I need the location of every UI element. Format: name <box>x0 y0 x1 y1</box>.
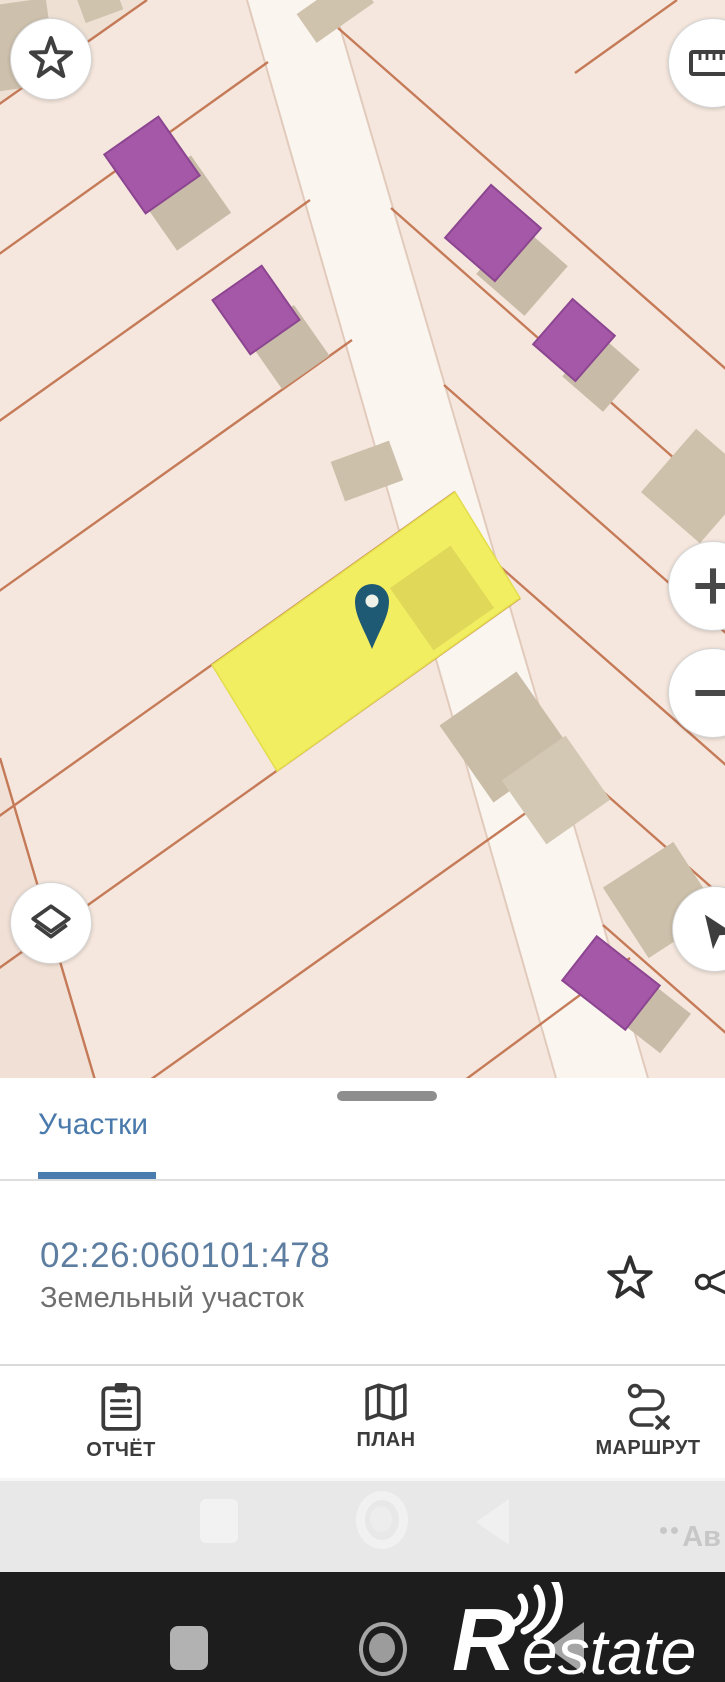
bottom-sheet: Участки 02:26:060101:478 Земельный участ… <box>0 1078 725 1478</box>
svg-text:R: R <box>452 1590 516 1682</box>
brand-watermark: R estate <box>452 1582 725 1682</box>
route-icon <box>625 1382 671 1430</box>
watermark-dot <box>660 1527 667 1534</box>
restate-logo: R estate <box>452 1582 725 1682</box>
star-icon <box>27 35 75 83</box>
clipboard-icon <box>100 1382 142 1432</box>
report-label: ОТЧЁТ <box>86 1439 155 1462</box>
tab-active-indicator <box>38 1172 156 1179</box>
navigation-arrow-icon <box>693 907 725 951</box>
favorite-parcel-button[interactable] <box>604 1254 656 1309</box>
route-label: МАРШРУТ <box>595 1437 700 1460</box>
folded-map-icon <box>364 1382 408 1422</box>
parcel-type-label: Земельный участок <box>40 1282 304 1315</box>
divider <box>0 1179 725 1181</box>
star-outline-icon <box>604 1254 656 1304</box>
recents-ghost-icon <box>200 1499 238 1543</box>
home-ghost-icon <box>356 1491 408 1549</box>
ghost-watermark: Ав <box>660 1521 721 1554</box>
svg-text:estate: estate <box>522 1616 696 1682</box>
minus-icon <box>691 671 725 715</box>
cadastral-number: 02:26:060101:478 <box>40 1236 330 1276</box>
plus-icon <box>691 564 725 608</box>
tab-parcels[interactable]: Участки <box>38 1108 148 1142</box>
plan-label: ПЛАН <box>357 1429 416 1452</box>
favorites-button[interactable] <box>10 18 92 100</box>
back-ghost-icon <box>476 1499 509 1545</box>
android-navbar-ghost: Ав <box>0 1478 725 1572</box>
cadastral-map[interactable] <box>0 0 725 1078</box>
android-navbar: R estate <box>0 1572 725 1682</box>
plan-button[interactable]: ПЛАН <box>306 1382 466 1452</box>
sheet-drag-handle[interactable] <box>337 1091 437 1101</box>
layers-icon <box>28 902 74 944</box>
share-icon <box>694 1254 725 1310</box>
recents-button[interactable] <box>170 1626 208 1670</box>
divider <box>0 1364 725 1366</box>
cadastral-map-canvas[interactable] <box>0 0 725 1078</box>
ghost-watermark-text: Ав <box>682 1521 721 1554</box>
home-button[interactable] <box>359 1622 407 1676</box>
ruler-icon <box>689 48 725 78</box>
home-button-inner <box>369 1633 395 1663</box>
layers-button[interactable] <box>10 882 92 964</box>
report-button[interactable]: ОТЧЁТ <box>41 1382 201 1462</box>
route-button[interactable]: МАРШРУТ <box>568 1382 725 1460</box>
watermark-dot <box>671 1527 678 1534</box>
app-screen: Участки 02:26:060101:478 Земельный участ… <box>0 0 725 1682</box>
share-button[interactable] <box>694 1254 725 1315</box>
